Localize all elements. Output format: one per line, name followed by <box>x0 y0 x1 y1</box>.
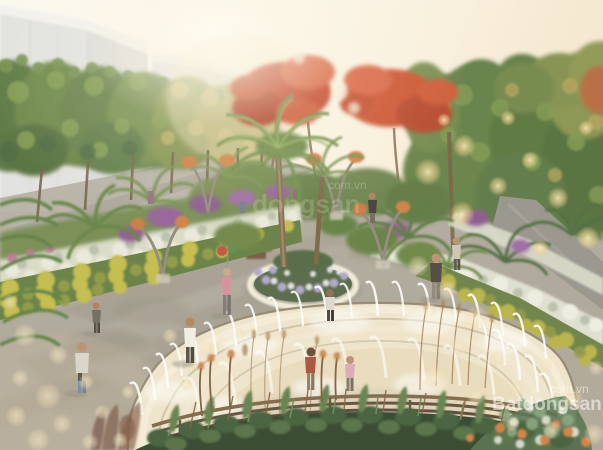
svg-text:Batdongsan: Batdongsan <box>492 394 602 415</box>
svg-text:dongsan: dongsan <box>252 189 360 219</box>
